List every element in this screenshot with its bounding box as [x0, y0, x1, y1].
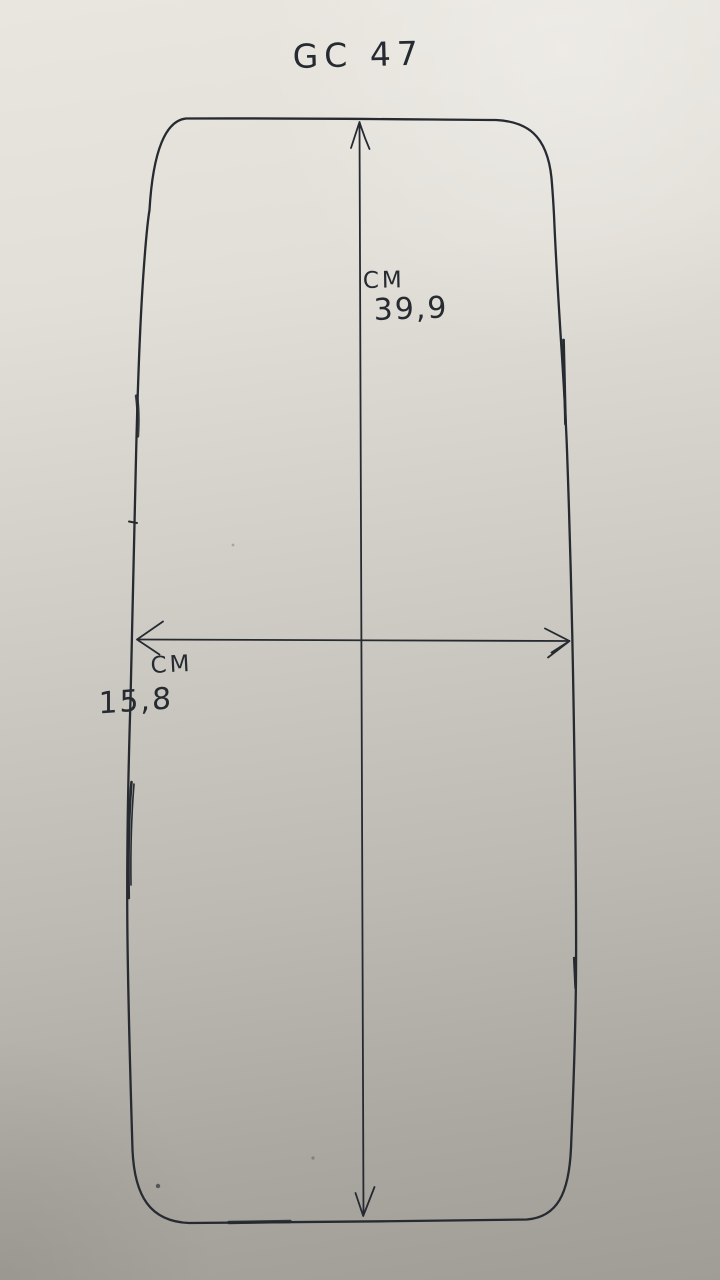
vertical-dimension-value: 39,9 — [373, 290, 449, 328]
paper-speck — [156, 1184, 160, 1188]
ink-overlap-right-upper — [564, 340, 566, 424]
horizontal-dimension-value: 15,8 — [98, 681, 173, 721]
horizontal-arrowhead-right — [545, 629, 570, 658]
template-outline — [127, 118, 576, 1223]
ink-overlap-bottom-edge — [229, 1222, 290, 1223]
ink-overlap-right-lower — [574, 958, 575, 988]
sketch-title: GC 47 — [292, 34, 424, 76]
ink-overlap-left-upper — [137, 396, 139, 436]
photo-hand-drawn-template-sketch: GC 47 CM 39,9 CM 15,8 — [0, 0, 720, 1280]
horizontal-dimension-unit: CM — [150, 651, 193, 679]
ink-tick-left-edge — [129, 522, 137, 524]
horizontal-dimension-line — [138, 640, 569, 642]
paper-speck — [311, 1156, 314, 1159]
sketch-svg: GC 47 CM 39,9 CM 15,8 — [0, 0, 720, 1280]
vertical-dimension-unit: CM — [363, 267, 405, 294]
horizontal-arrowhead-left — [137, 622, 163, 655]
paper-speck — [232, 544, 235, 547]
vertical-arrowhead-bottom — [356, 1187, 375, 1216]
